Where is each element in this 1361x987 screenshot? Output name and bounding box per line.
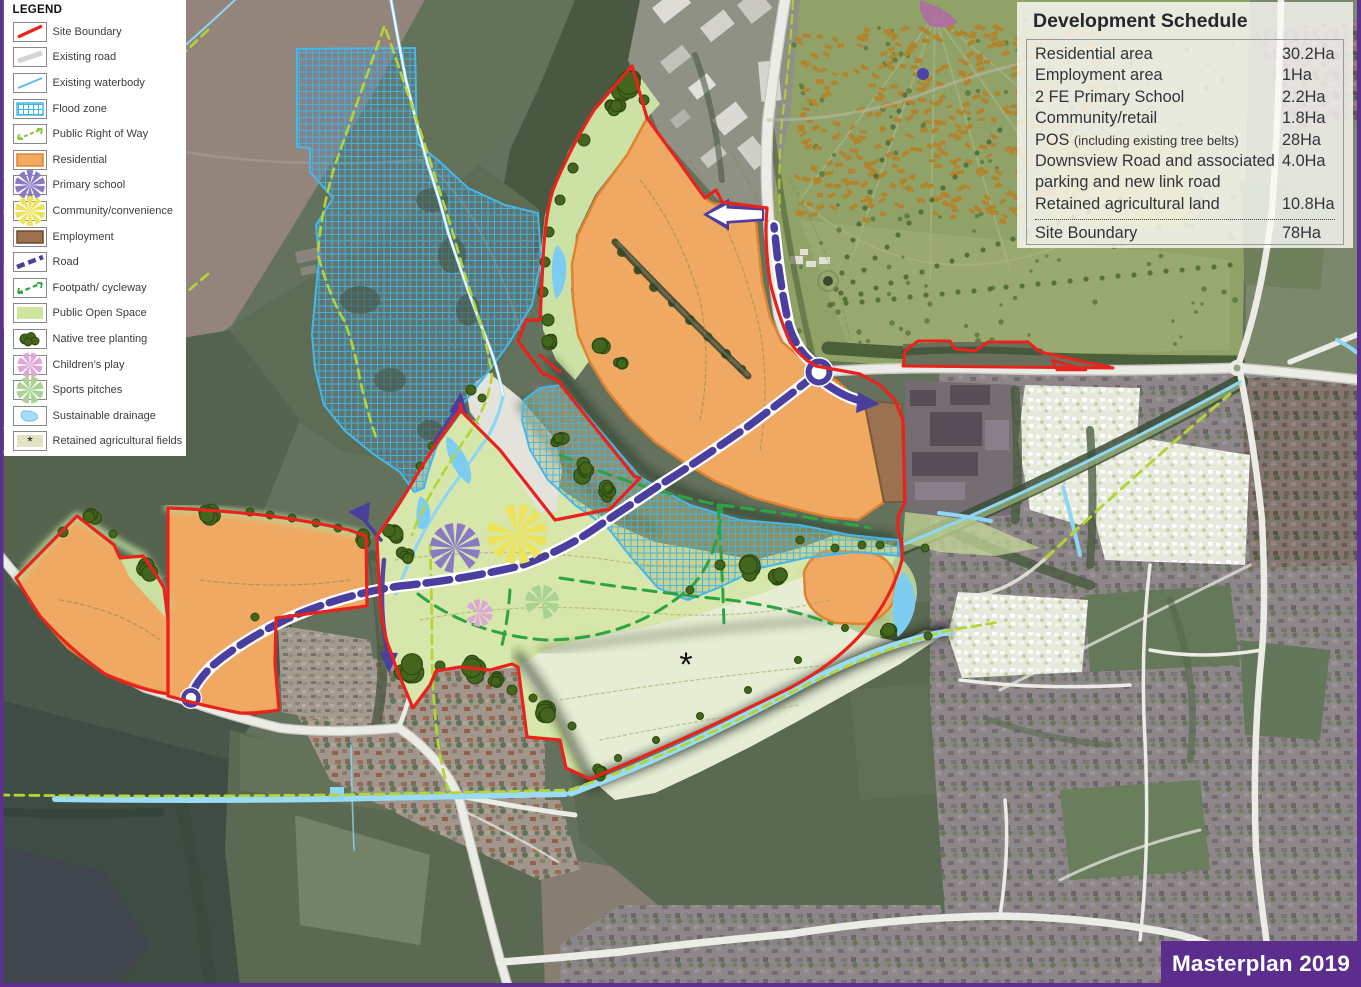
svg-text:*: *	[27, 433, 33, 449]
svg-text:*: *	[679, 646, 692, 684]
